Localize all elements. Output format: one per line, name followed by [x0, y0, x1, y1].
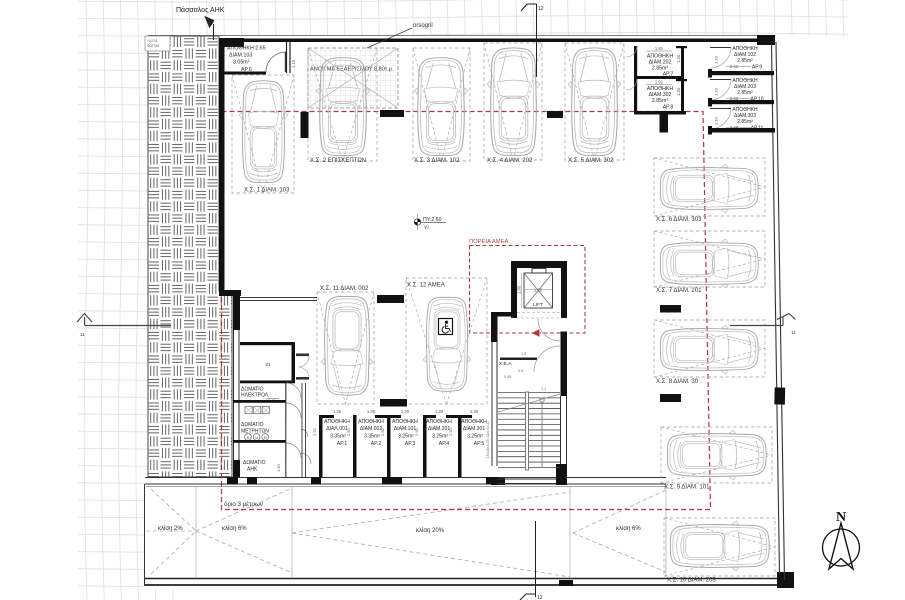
svg-text:3.25m²: 3.25m²: [398, 434, 414, 440]
svg-text:1.1: 1.1: [541, 387, 546, 391]
svg-text:ΑΠΟΘΗΚΗ: ΑΠΟΘΗΚΗ: [461, 419, 487, 425]
svg-text:1.30: 1.30: [401, 409, 410, 414]
svg-text:Χ.Σ. 1 ΔΙΑΜ. 103: Χ.Σ. 1 ΔΙΑΜ. 103: [244, 188, 290, 194]
svg-text:ΑΡ.8: ΑΡ.8: [663, 105, 674, 111]
svg-text:2.85m²: 2.85m²: [737, 90, 753, 96]
svg-text:ΔΩΜΑΤΙΟ: ΔΩΜΑΤΙΟ: [241, 422, 264, 428]
svg-text:ΦΩΤ/2Θ: ΦΩΤ/2Θ: [147, 44, 160, 48]
svg-text:Χ.Σ. 7 ΔΙΑΜ. 201: Χ.Σ. 7 ΔΙΑΜ. 201: [656, 288, 702, 294]
svg-text:Υ/: Υ/: [424, 226, 429, 232]
svg-text:Χ.Σ. 10 ΔΙΑΜ. 203: Χ.Σ. 10 ΔΙΑΜ. 203: [667, 578, 716, 584]
svg-text:ΑΡ.4: ΑΡ.4: [439, 441, 450, 447]
svg-text:ΑΗΚ: ΑΗΚ: [247, 467, 258, 473]
svg-text:2.50: 2.50: [312, 427, 317, 436]
svg-text:2.41: 2.41: [730, 64, 739, 69]
svg-text:M: M: [264, 436, 267, 440]
svg-text:11: 11: [791, 330, 796, 335]
svg-text:Χ.Σ. 4 ΔΙΑΜ. 202: Χ.Σ. 4 ΔΙΑΜ. 202: [487, 158, 533, 164]
svg-text:M: M: [247, 436, 250, 440]
svg-text:0.9: 0.9: [518, 369, 523, 373]
svg-text:1.60: 1.60: [534, 288, 543, 293]
svg-text:1.34: 1.34: [676, 54, 681, 63]
svg-text:κλίση 6%: κλίση 6%: [616, 526, 641, 532]
svg-text:N: N: [836, 510, 846, 525]
svg-text:ΑΡ.5: ΑΡ.5: [474, 441, 485, 447]
svg-text:11: 11: [80, 332, 85, 337]
svg-text:ΑΡ.3: ΑΡ.3: [405, 441, 416, 447]
svg-text:κλίση 6%: κλίση 6%: [222, 526, 247, 532]
svg-text:ΑΡ.9: ΑΡ.9: [752, 65, 762, 71]
svg-text:Χ.Σ. 2 ΕΠΙΣΚΕΠΤΩΝ: Χ.Σ. 2 ΕΠΙΣΚΕΠΤΩΝ: [310, 158, 366, 164]
svg-text:3.35m²: 3.35m²: [364, 434, 380, 440]
svg-text:M: M: [255, 436, 258, 440]
svg-text:Χ.Σ. 5 ΔΙΑΜ. 302: Χ.Σ. 5 ΔΙΑΜ. 302: [568, 158, 614, 164]
svg-text:ΑΠΟΘΗΚΗ 2.65: ΑΠΟΘΗΚΗ 2.65: [227, 46, 266, 52]
svg-text:Πάσσαλος ΑΗΚ: Πάσσαλος ΑΗΚ: [176, 6, 225, 14]
svg-text:orsogril: orsogril: [413, 23, 433, 29]
svg-text:Χ.Σ. 3 ΔΙΑΜ. 102: Χ.Σ. 3 ΔΙΑΜ. 102: [414, 158, 460, 164]
svg-text:ΑΡ.7: ΑΡ.7: [663, 72, 674, 78]
svg-text:Χ.Σ. 8 ΔΙΑΜ. 30: Χ.Σ. 8 ΔΙΑΜ. 30: [656, 379, 699, 385]
svg-text:ΠΟΡΕΙΑ ΑΜΕΑ: ΠΟΡΕΙΑ ΑΜΕΑ: [469, 239, 508, 245]
svg-text:Χ.Ε.Α.: Χ.Ε.Α.: [499, 361, 513, 367]
svg-text:κλίση 2%: κλίση 2%: [158, 526, 183, 532]
svg-text:1.35: 1.35: [367, 409, 376, 414]
svg-text:LIFT: LIFT: [533, 302, 543, 308]
svg-text:1.2: 1.2: [521, 352, 526, 356]
svg-text:3.25m²: 3.25m²: [432, 434, 448, 440]
svg-text:ΑΠΟΘΗΚΗ: ΑΠΟΘΗΚΗ: [358, 419, 384, 425]
svg-text:1.91: 1.91: [655, 80, 664, 85]
svg-text:ΔΙΑΜ.301: ΔΙΑΜ.301: [463, 426, 486, 432]
svg-text:ΑΠΟΘΗΚΗ: ΑΠΟΘΗΚΗ: [392, 419, 418, 425]
svg-text:1.35: 1.35: [333, 409, 342, 414]
svg-text:1.34: 1.34: [676, 87, 681, 96]
svg-text:+0 ΕΛΣ: +0 ΕΛΣ: [147, 39, 158, 43]
svg-text:3.05m²: 3.05m²: [233, 60, 250, 66]
svg-text:Χ.Σ. 6 ΔΙΑΜ. 303: Χ.Σ. 6 ΔΙΑΜ. 303: [656, 217, 702, 223]
svg-text:ΔΙΑΜ.103: ΔΙΑΜ.103: [229, 53, 252, 59]
svg-text:17x18(=3.15) 12x(=3.11): 17x18(=3.15) 12x(=3.11): [486, 421, 490, 458]
svg-text:κλίση 20%: κλίση 20%: [416, 528, 445, 534]
svg-text:ΑΡ.6: ΑΡ.6: [241, 67, 252, 73]
svg-text:2.85m²: 2.85m²: [652, 98, 668, 104]
svg-text:1.30: 1.30: [470, 409, 479, 414]
svg-text:1.50: 1.50: [276, 463, 281, 472]
svg-text:Χ.Σ. 12 ΑΜΕΑ: Χ.Σ. 12 ΑΜΕΑ: [407, 283, 445, 289]
svg-text:21: 21: [265, 362, 271, 368]
svg-text:ΑΠΟΘΗΚΗ: ΑΠΟΘΗΚΗ: [324, 419, 350, 425]
svg-text:1.15: 1.15: [291, 59, 296, 68]
svg-text:2.50: 2.50: [448, 427, 453, 436]
svg-text:1.10: 1.10: [714, 55, 719, 64]
svg-text:0.55: 0.55: [504, 375, 511, 379]
svg-text:2.85m²: 2.85m²: [737, 58, 753, 64]
svg-text:12: 12: [538, 6, 544, 12]
svg-text:3.25m²: 3.25m²: [467, 434, 483, 440]
svg-text:ΑΡ.1: ΑΡ.1: [337, 441, 348, 447]
svg-text:ΠΥ:2.60: ΠΥ:2.60: [423, 217, 442, 223]
svg-text:3.35m²: 3.35m²: [330, 434, 346, 440]
svg-text:1.80: 1.80: [517, 285, 522, 294]
svg-text:1.10: 1.10: [714, 87, 719, 96]
svg-text:Χ.Σ. 11 ΔΙΑΜ. 002: Χ.Σ. 11 ΔΙΑΜ. 002: [320, 286, 369, 292]
svg-text:ΔΩΜΑΤΙΟ: ΔΩΜΑΤΙΟ: [243, 460, 266, 466]
svg-text:Χ.Σ. 9 ΔΙΑΜ. 101: Χ.Σ. 9 ΔΙΑΜ. 101: [664, 485, 710, 491]
svg-text:όριο 3 μέτρων: όριο 3 μέτρων: [224, 501, 263, 508]
svg-text:1.30: 1.30: [435, 409, 444, 414]
svg-text:1.91: 1.91: [655, 46, 664, 51]
svg-text:ΑΠΟΘΗΚΗ: ΑΠΟΘΗΚΗ: [426, 419, 452, 425]
svg-text:2.50: 2.50: [346, 427, 351, 436]
svg-text:ΑΡ.2: ΑΡ.2: [371, 441, 382, 447]
svg-text:ΗΛΕΚΤΡΟΛ.: ΗΛΕΚΤΡΟΛ.: [241, 393, 270, 399]
svg-text:2.50: 2.50: [414, 427, 419, 436]
svg-text:2.50: 2.50: [380, 427, 385, 436]
svg-text:ΔΙΑΛ.001: ΔΙΑΛ.001: [326, 426, 348, 432]
svg-text:1.10: 1.10: [714, 116, 719, 125]
svg-text:12: 12: [537, 595, 543, 600]
svg-text:2.85m²: 2.85m²: [737, 119, 753, 125]
